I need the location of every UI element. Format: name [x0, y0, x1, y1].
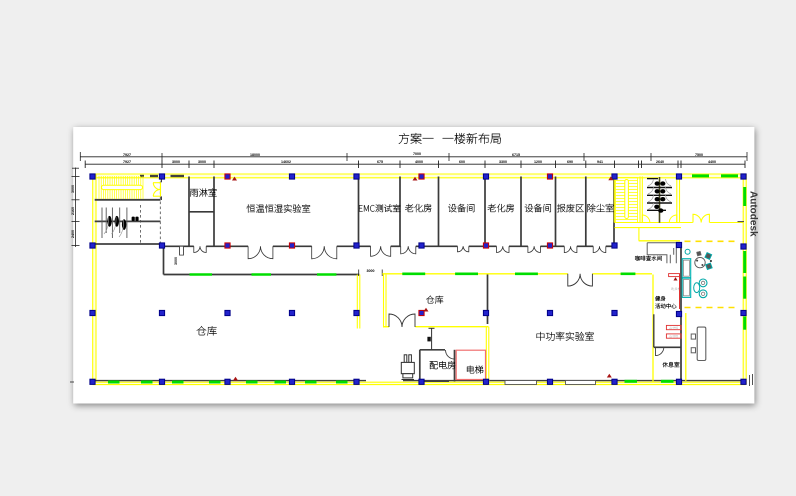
- svg-text:3300: 3300: [499, 160, 507, 164]
- svg-text:7500: 7500: [695, 153, 703, 157]
- svg-text:6715: 6715: [512, 153, 520, 157]
- svg-text:Autodesk: Autodesk: [748, 191, 759, 237]
- svg-text:1200: 1200: [534, 160, 542, 164]
- svg-text:7927: 7927: [123, 160, 131, 164]
- svg-text:2160: 2160: [71, 207, 75, 215]
- svg-text:4000: 4000: [415, 160, 423, 164]
- svg-text:675: 675: [377, 160, 383, 164]
- svg-text:3000: 3000: [71, 185, 75, 193]
- svg-text:3000: 3000: [172, 160, 180, 164]
- svg-text:7000: 7000: [413, 152, 421, 156]
- svg-text:7927: 7927: [123, 153, 131, 157]
- svg-text:941: 941: [597, 160, 603, 164]
- svg-text:600: 600: [459, 160, 465, 164]
- svg-text:2640: 2640: [656, 160, 664, 164]
- svg-text:3000: 3000: [174, 257, 178, 265]
- svg-text:690: 690: [567, 160, 573, 164]
- svg-text:3000: 3000: [198, 160, 206, 164]
- svg-text:18000: 18000: [250, 153, 260, 157]
- svg-text:3000: 3000: [367, 269, 375, 273]
- svg-text:14602: 14602: [281, 160, 291, 164]
- svg-text:4400: 4400: [708, 160, 716, 164]
- svg-text:2400: 2400: [71, 230, 75, 238]
